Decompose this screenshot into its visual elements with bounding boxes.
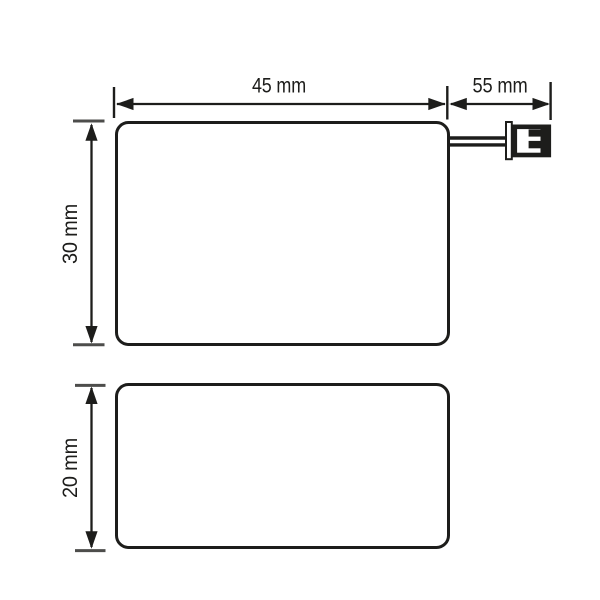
dimension-height-front: 30 mm	[59, 121, 105, 345]
arrowhead-down-icon	[85, 531, 97, 549]
dimension-cable-length: 55 mm	[449, 75, 550, 121]
device-body-side	[117, 385, 449, 548]
front-view	[117, 122, 549, 345]
cable-dimension-label: 55 mm	[473, 75, 528, 98]
connector-flange	[506, 122, 512, 159]
connector-pin-slot-bottom	[529, 141, 541, 148]
height-side-dimension-label: 20 mm	[59, 438, 82, 498]
arrowhead-right-icon	[533, 98, 551, 110]
width-dimension-label: 45 mm	[252, 75, 306, 98]
connector-contact-bar	[541, 129, 548, 153]
arrowhead-up-icon	[85, 387, 97, 405]
side-view	[117, 385, 449, 548]
height-front-dimension-label: 30 mm	[59, 204, 82, 264]
connector-pin-slot-top	[529, 129, 541, 136]
device-body-front	[117, 123, 449, 345]
dimension-height-side: 20 mm	[59, 385, 106, 550]
arrowhead-right-icon	[428, 98, 446, 110]
plug-connector	[506, 122, 549, 159]
dimension-width: 45 mm	[114, 75, 447, 120]
arrowhead-down-icon	[85, 326, 97, 344]
connector-cable	[448, 138, 507, 145]
dimension-drawing-svg: 45 mm 55 mm 30 mm 20 mm	[0, 0, 600, 600]
arrowhead-up-icon	[85, 123, 97, 141]
drawing-canvas: 45 mm 55 mm 30 mm 20 mm	[0, 0, 600, 600]
arrowhead-left-icon	[116, 98, 134, 110]
arrowhead-left-icon	[449, 98, 467, 110]
